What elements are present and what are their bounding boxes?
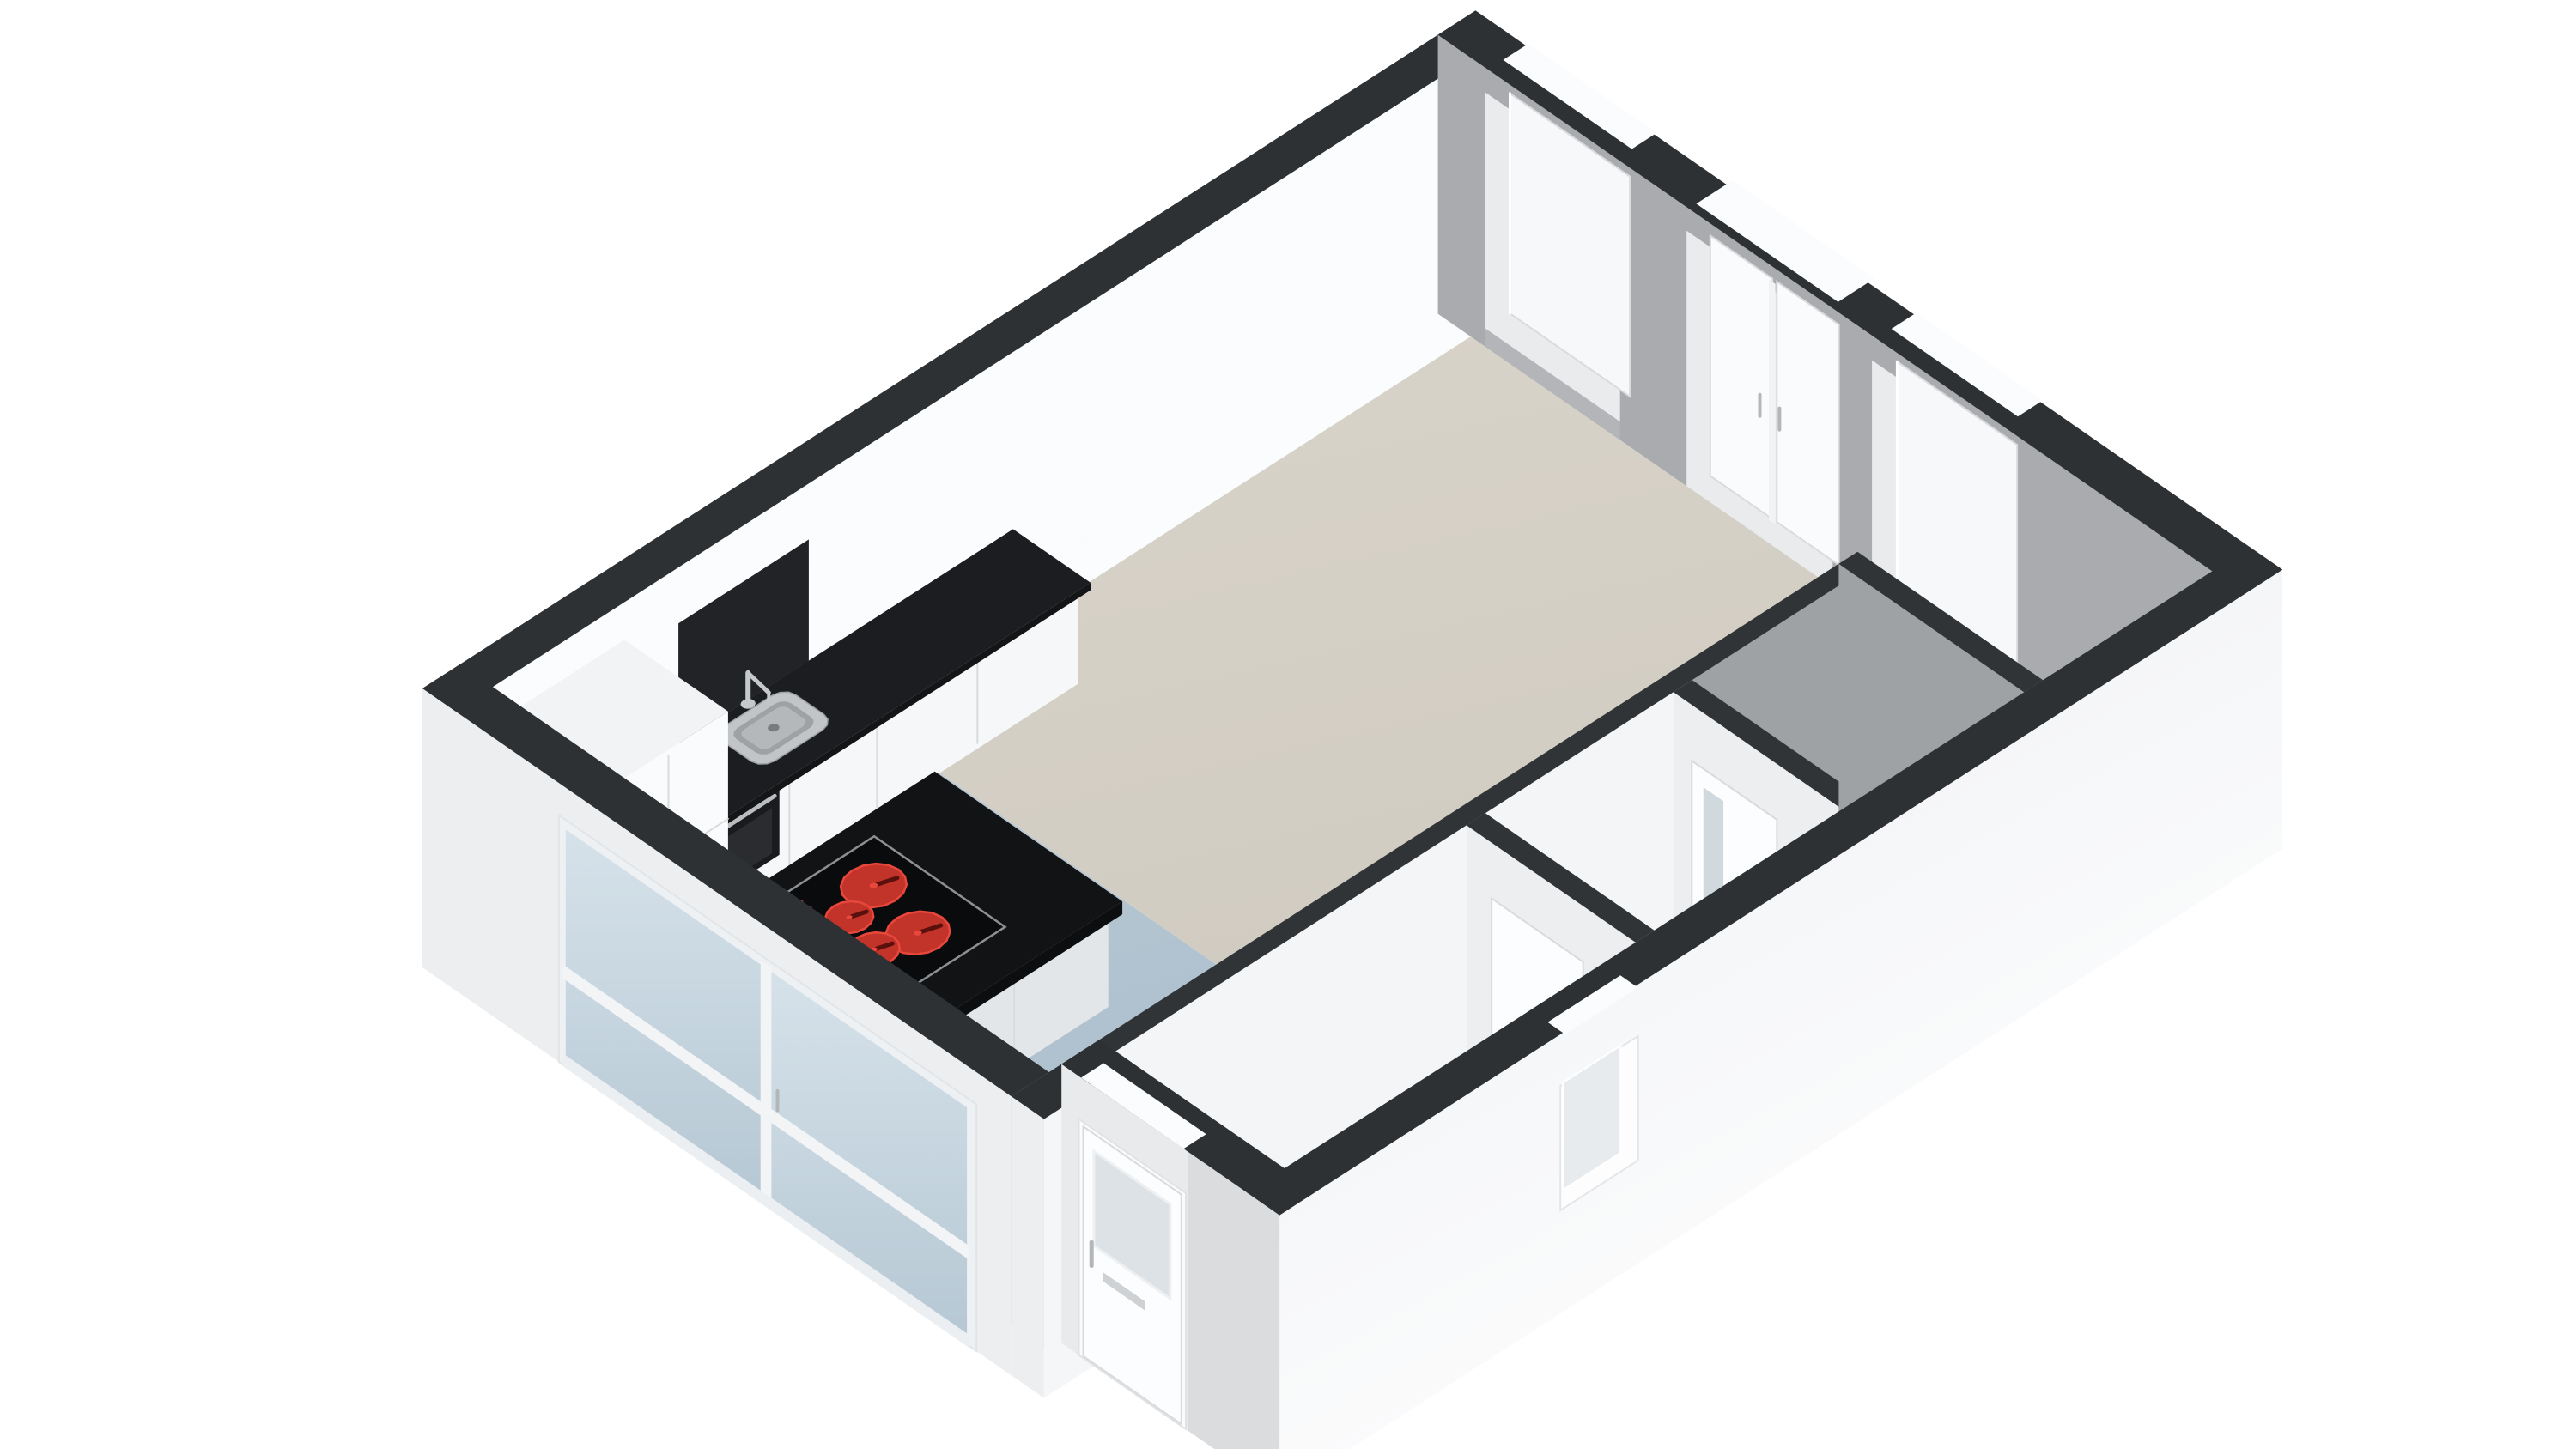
floorplan-canvas — [0, 0, 2576, 1449]
floorplan-3d-render — [0, 0, 2576, 1449]
